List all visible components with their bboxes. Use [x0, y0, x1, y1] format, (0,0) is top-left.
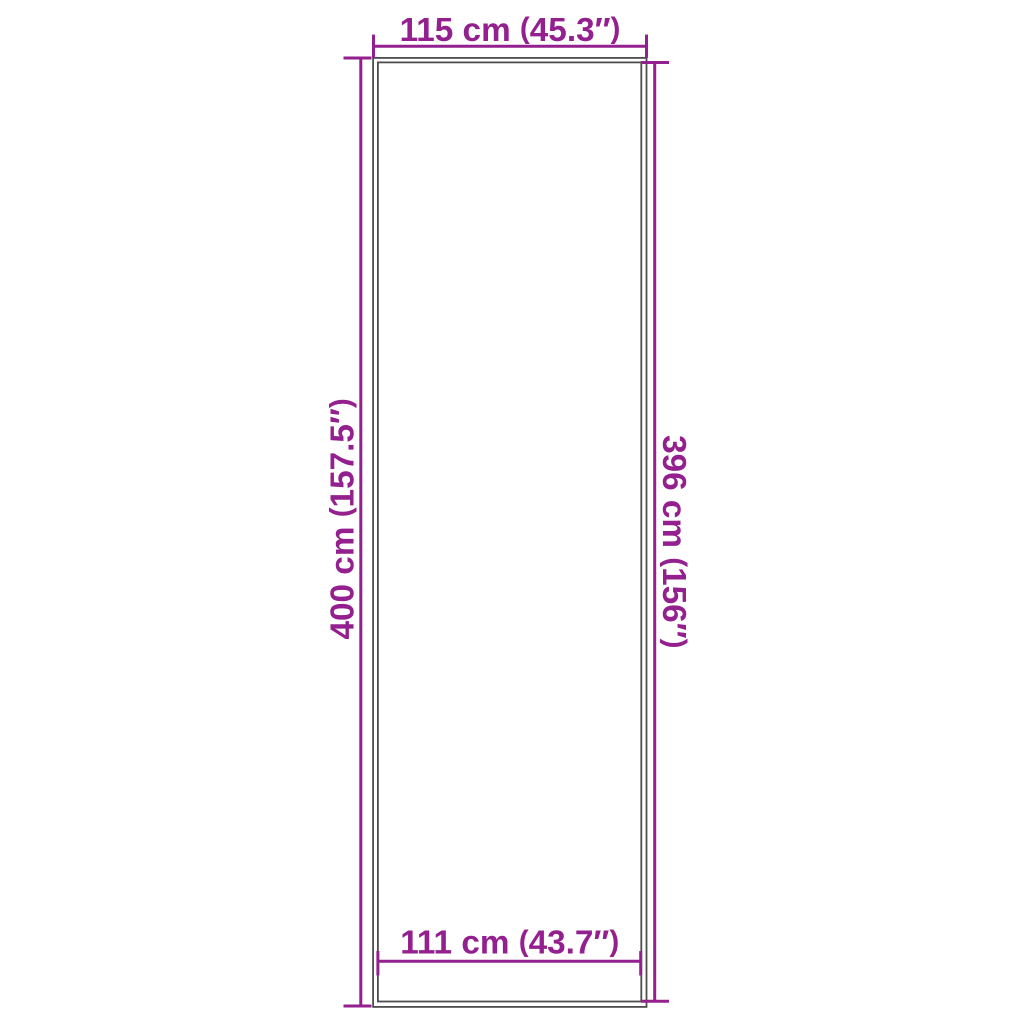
svg-text:400 cm (157.5″): 400 cm (157.5″): [324, 398, 361, 639]
svg-text:111 cm (43.7″): 111 cm (43.7″): [400, 925, 619, 962]
svg-text:396 cm (156″): 396 cm (156″): [655, 435, 692, 648]
svg-text:115 cm (45.3″): 115 cm (45.3″): [400, 12, 621, 49]
